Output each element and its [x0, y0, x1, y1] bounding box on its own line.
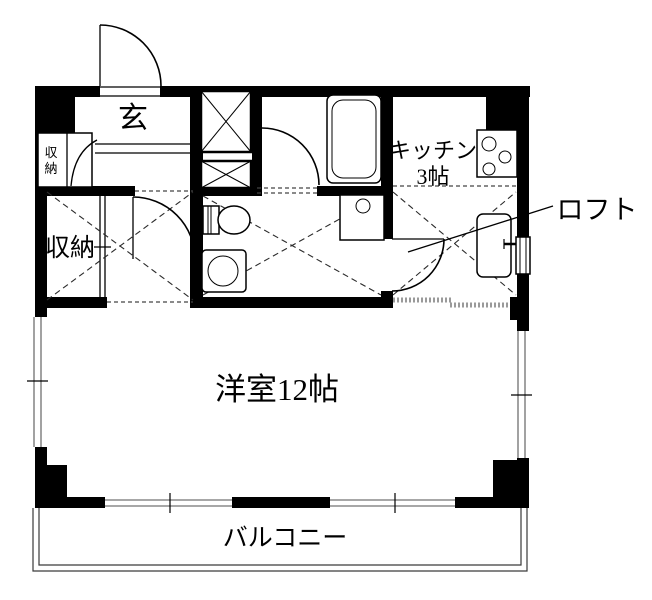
kitchen-label-line1: キッチン: [389, 138, 477, 163]
entry-closet-label-char1: 収: [44, 145, 57, 160]
wall-bottom-seg2: [232, 497, 330, 508]
kitchen-label-line2: 3帖: [416, 164, 449, 189]
wall-bottom-seg3: [455, 497, 493, 508]
balcony-label: バルコニー: [223, 525, 348, 552]
wall-bottom-seg1: [35, 497, 105, 508]
floor-plan: 玄 収 納 収納 キッチン 3帖 ロフト 洋室12帖 バルコニー: [0, 0, 652, 600]
hall-door-arc: [133, 197, 195, 259]
openings: [107, 188, 510, 305]
window-bottom-right: [330, 493, 455, 513]
entry-closet-box: [38, 133, 92, 187]
toilet-icon: [203, 206, 250, 234]
entrance-door: [100, 25, 161, 97]
loft-dashed-boundary: [47, 186, 516, 300]
bathroom-door-arc: [262, 128, 319, 185]
pipe-shaft-icon: [201, 91, 251, 188]
wall-divider-seg2: [193, 297, 393, 308]
wall-divider-seg1: [35, 297, 107, 308]
wall-corner-bottom-right: [493, 460, 529, 508]
bathtub-icon: [327, 95, 381, 183]
stove-icon: [477, 130, 517, 177]
window-bottom-left: [105, 493, 232, 513]
entry-closet-label-char2: 納: [44, 161, 57, 176]
entrance-door-arc: [100, 25, 161, 86]
kitchen-door-arc: [392, 239, 444, 291]
storage-room-label: 収納: [45, 234, 95, 262]
wall-left-upper: [35, 86, 47, 317]
loft-label: ロフト: [557, 195, 638, 225]
kitchen-wall-vent: [516, 237, 530, 274]
washbasin-icon: [340, 195, 384, 240]
wall-bath-kitchen-lower: [381, 291, 393, 308]
window-left: [27, 317, 48, 447]
storage-sliding-door: [94, 196, 111, 297]
entry-hall: [38, 133, 190, 187]
laundry-pan-icon: [202, 250, 246, 292]
wall-divider-stub: [510, 297, 523, 320]
main-room-label: 洋室12帖: [215, 372, 339, 407]
wall-shaft-right: [252, 86, 262, 196]
entrance-label: 玄: [118, 102, 148, 135]
window-right: [511, 331, 532, 458]
